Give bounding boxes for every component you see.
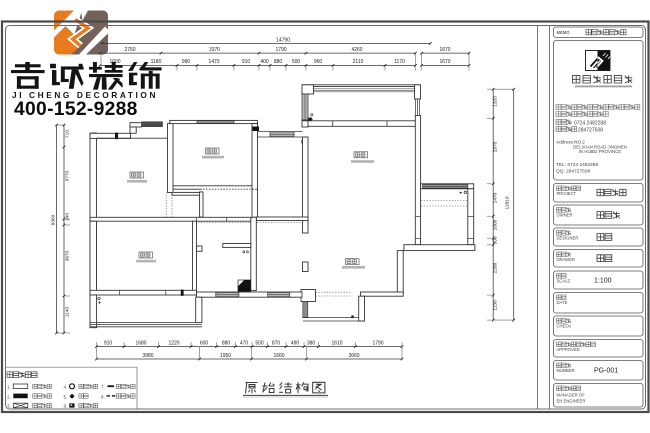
svg-text:300: 300 <box>492 236 498 244</box>
svg-text:3670: 3670 <box>64 250 70 261</box>
svg-text:960: 960 <box>314 59 323 65</box>
svg-text:470: 470 <box>240 340 249 346</box>
svg-text:2760: 2760 <box>124 47 135 53</box>
svg-text:284727508: 284727508 <box>578 127 603 133</box>
svg-text:1130: 1130 <box>492 300 498 311</box>
svg-text:6.: 6. <box>64 404 68 409</box>
svg-text:1670: 1670 <box>439 47 450 53</box>
svg-text:CHECK: CHECK <box>557 324 572 329</box>
svg-text:1790: 1790 <box>372 340 383 346</box>
svg-text:1:100: 1:100 <box>594 277 612 284</box>
svg-text:1950: 1950 <box>220 353 231 359</box>
svg-text:11810: 11810 <box>505 196 511 209</box>
svg-text:APPROVED: APPROVED <box>557 347 580 352</box>
svg-text:5.: 5. <box>64 394 68 399</box>
svg-text:1140: 1140 <box>64 307 70 318</box>
svg-text:PROJECT: PROJECT <box>557 191 577 196</box>
svg-text:3370: 3370 <box>209 47 220 53</box>
svg-text:140: 140 <box>64 213 70 221</box>
svg-text:3770: 3770 <box>64 170 70 181</box>
svg-text:880: 880 <box>222 340 231 346</box>
svg-text:880: 880 <box>274 59 283 65</box>
svg-text:870: 870 <box>272 340 281 346</box>
svg-text:1470: 1470 <box>492 192 498 203</box>
svg-text:1.: 1. <box>7 385 11 390</box>
svg-text:DRAWER: DRAWER <box>557 257 575 262</box>
svg-text:2970: 2970 <box>492 141 498 152</box>
svg-text:SCALE: SCALE <box>557 279 571 284</box>
svg-text:NUMBER: NUMBER <box>557 368 575 373</box>
svg-text:1790: 1790 <box>275 47 286 53</box>
svg-text:1670: 1670 <box>439 59 450 65</box>
svg-text:9360: 9360 <box>51 214 57 225</box>
svg-text:1660: 1660 <box>273 353 284 359</box>
svg-text:OWNER: OWNER <box>557 213 573 218</box>
svg-text:4260: 4260 <box>351 47 362 53</box>
svg-text:EN ENGINEER: EN ENGINEER <box>557 399 586 404</box>
svg-text:2110: 2110 <box>353 59 364 65</box>
svg-text:2.: 2. <box>7 394 11 399</box>
svg-text:3.: 3. <box>7 404 11 409</box>
svg-text:MEMO: MEMO <box>557 30 571 35</box>
svg-text:QQ: 284727508: QQ: 284727508 <box>556 169 590 175</box>
svg-text:3660: 3660 <box>348 353 359 359</box>
svg-text:380: 380 <box>307 340 316 346</box>
svg-text:1610: 1610 <box>331 340 342 346</box>
svg-text::: : <box>38 374 40 380</box>
svg-text:8.: 8. <box>101 394 105 399</box>
svg-text:1220: 1220 <box>168 340 179 346</box>
svg-text:DESIGNER: DESIGNER <box>557 236 579 241</box>
svg-text:1470: 1470 <box>208 59 219 65</box>
svg-text:1170: 1170 <box>394 59 405 65</box>
svg-text:990: 990 <box>182 59 191 65</box>
svg-text:MANAGER OF: MANAGER OF <box>557 393 586 398</box>
svg-text:1000: 1000 <box>492 219 498 230</box>
svg-text:TEL: 0724 2482288: TEL: 0724 2482288 <box>556 162 598 168</box>
svg-text:1320: 1320 <box>492 96 498 107</box>
svg-text:7.: 7. <box>101 385 105 390</box>
svg-text:14790: 14790 <box>276 38 290 44</box>
svg-text:IN HUBEI PROVINCE: IN HUBEI PROVINCE <box>579 149 621 154</box>
svg-text:DATE: DATE <box>557 300 568 305</box>
svg-text:500: 500 <box>255 340 264 346</box>
svg-text:400: 400 <box>260 59 269 65</box>
svg-text:PG-001: PG-001 <box>594 368 618 375</box>
svg-text:600: 600 <box>200 340 209 346</box>
svg-text:4.: 4. <box>64 385 68 390</box>
svg-text:3980: 3980 <box>142 353 153 359</box>
svg-text:910: 910 <box>104 340 113 346</box>
svg-text:710: 710 <box>64 130 70 138</box>
svg-text:500: 500 <box>292 59 301 65</box>
svg-text:1680: 1680 <box>135 340 146 346</box>
svg-text:0724 2482288: 0724 2482288 <box>574 120 606 126</box>
svg-text:2280: 2280 <box>492 262 498 273</box>
svg-text:910: 910 <box>242 59 251 65</box>
svg-text:490: 490 <box>291 340 300 346</box>
